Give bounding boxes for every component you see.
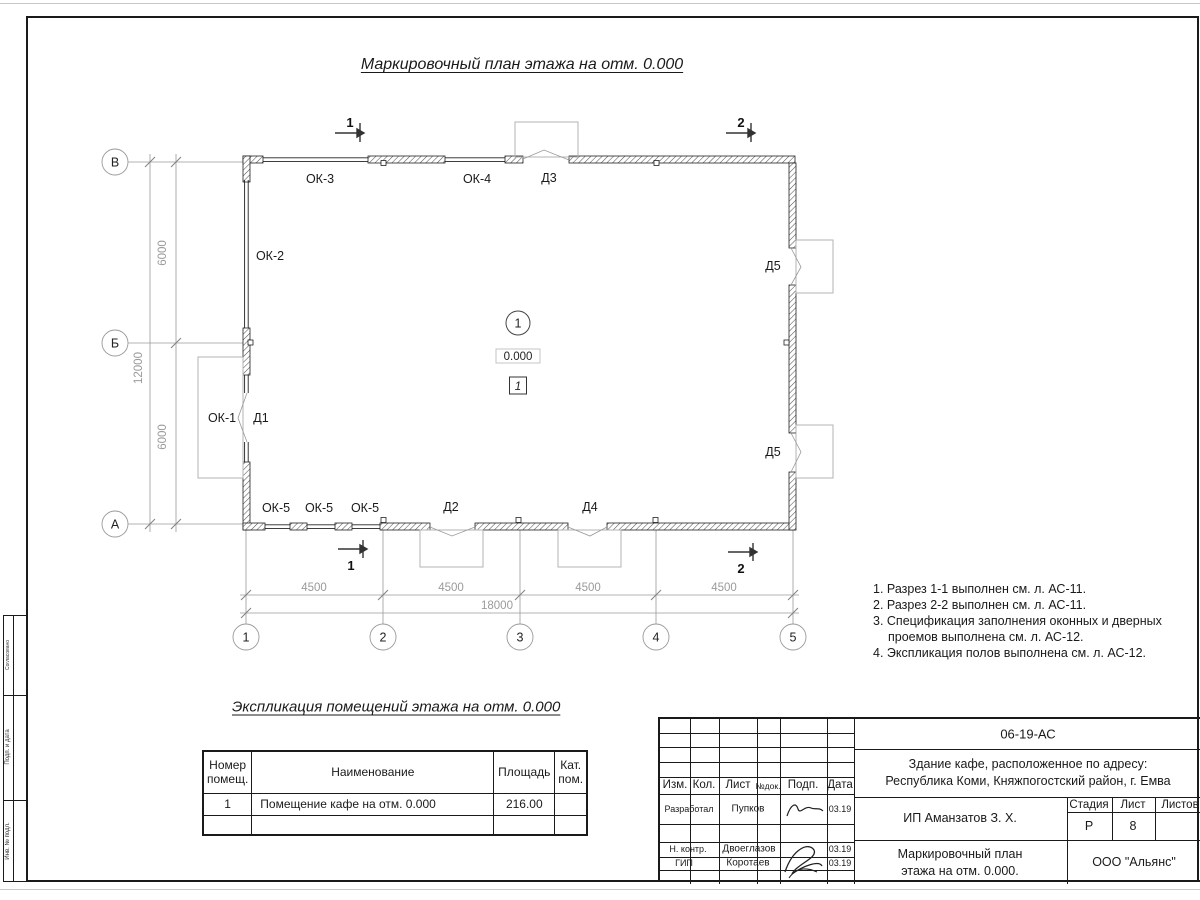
stamp-drawing-name-line2: этажа на отм. 0.000. <box>901 864 1018 878</box>
dim-4500: 4500 <box>711 582 737 594</box>
door-label-d1: Д1 <box>253 411 268 425</box>
stamp-role: Разработал <box>665 804 714 814</box>
stamp-date: 03.19 <box>829 858 852 868</box>
grid-bubbles: В Б А 1 2 3 4 5 <box>102 149 806 650</box>
stamp-drawing-name-line1: Маркировочный план <box>898 847 1023 861</box>
dim-18000: 18000 <box>481 600 513 612</box>
window-label-ok5: ОК-5 <box>305 501 333 515</box>
grid-col-label: 2 <box>380 631 387 645</box>
dim-6000-upper: 6000 <box>157 240 169 266</box>
explication-table: Номер помещ. Наименование Площадь Кат. п… <box>202 750 588 836</box>
stamp-sheets-label: Листов <box>1161 799 1198 811</box>
title-block: Изм. Кол. Лист №док. Подп. Дата Разработ… <box>658 717 1200 882</box>
column-header-name: Наименование <box>252 751 494 793</box>
porches <box>198 122 833 567</box>
room-name-cell: Помещение кафе на отм. 0.000 <box>252 793 494 815</box>
stamp-role: ГИП <box>675 858 693 868</box>
note-item: 4. Экспликация полов выполнена см. л. АС… <box>873 645 1173 661</box>
stamp-name: Пупков <box>732 804 765 815</box>
window-label-ok5: ОК-5 <box>262 501 290 515</box>
dim-6000-lower: 6000 <box>157 424 169 450</box>
grid-row-label: В <box>111 156 119 170</box>
window-label-ok3: ОК-3 <box>306 172 334 186</box>
stamp-header-podp: Подп. <box>788 779 819 791</box>
stamp-header-izm: Изм. <box>663 779 688 791</box>
stamp-sheet-value: 8 <box>1130 819 1137 833</box>
section-mark-label: 2 <box>737 115 744 130</box>
drawing-sheet: Согласовано Подп. и дата Инв. № подл. Ма… <box>0 0 1200 900</box>
room-category-cell <box>555 793 587 815</box>
door-label-d3: Д3 <box>541 171 556 185</box>
explication-title: Экспликация помещений этажа на отм. 0.00… <box>232 699 560 716</box>
grid-lines <box>128 154 799 624</box>
stamp-sheet-label: Лист <box>1121 799 1146 811</box>
windows <box>245 158 505 529</box>
dim-12000: 12000 <box>133 352 145 384</box>
stamp-header-data: Дата <box>827 779 852 791</box>
stamp-company: ООО "Альянс" <box>1092 855 1176 869</box>
door-label-d4: Д4 <box>582 500 597 514</box>
column-header-number: Номер помещ. <box>203 751 252 793</box>
stamp-role: Н. контр. <box>669 844 706 854</box>
elevation-marker: 0.000 <box>504 351 533 363</box>
dim-4500: 4500 <box>575 582 601 594</box>
stamp-object-line1: Здание кафе, расположенное по адресу: <box>909 757 1148 771</box>
floor-type-marker: 1 <box>515 381 521 393</box>
section-mark-label: 1 <box>347 558 354 573</box>
stamp-header-kol: Кол. <box>693 779 716 791</box>
door-label-d5: Д5 <box>765 445 780 459</box>
room-area-cell: 216.00 <box>494 793 555 815</box>
grid-col-label: 1 <box>243 631 250 645</box>
wall-ties <box>248 161 789 523</box>
stamp-header-ndok: №док. <box>756 781 781 791</box>
stamp-client: ИП Аманзатов З. Х. <box>903 811 1017 825</box>
stamp-header-list: Лист <box>726 779 751 791</box>
grid-col-label: 5 <box>790 631 797 645</box>
signature-icon <box>779 838 826 882</box>
stamp-date: 03.19 <box>829 844 852 854</box>
grid-row-label: А <box>111 518 120 532</box>
walls <box>243 156 796 530</box>
stamp-name: Коротаев <box>726 858 769 869</box>
column-header-category: Кат. пом. <box>555 751 587 793</box>
window-label-ok2: ОК-2 <box>256 249 284 263</box>
stamp-object-line2: Республика Коми, Княжпогостский район, г… <box>885 774 1170 788</box>
stamp-doc-code: 06-19-АС <box>1000 727 1055 742</box>
grid-col-label: 4 <box>653 631 660 645</box>
note-item: 3. Спецификация заполнения оконных и две… <box>873 613 1173 645</box>
dim-4500: 4500 <box>438 582 464 594</box>
room-number-marker: 1 <box>515 317 522 331</box>
notes-list: 1. Разрез 1-1 выполнен см. л. АС-11. 2. … <box>873 581 1173 661</box>
window-label-ok1: ОК-1 <box>208 411 236 425</box>
section-mark-label: 1 <box>346 115 353 130</box>
door-label-d2: Д2 <box>443 500 458 514</box>
dimensions: 6000 12000 6000 4500 4500 4500 4500 1800… <box>133 240 737 612</box>
window-label-ok5: ОК-5 <box>351 501 379 515</box>
signature-icon <box>781 798 826 823</box>
column-header-area: Площадь <box>494 751 555 793</box>
door-leaves <box>238 150 801 536</box>
door-label-d5: Д5 <box>765 259 780 273</box>
dim-4500: 4500 <box>301 582 327 594</box>
stamp-date: 03.19 <box>829 804 852 814</box>
room-number-cell: 1 <box>203 793 252 815</box>
section-mark-label: 2 <box>737 561 744 576</box>
grid-row-label: Б <box>111 337 119 351</box>
table-row <box>203 815 587 835</box>
stamp-stage-value: Р <box>1085 819 1093 833</box>
stamp-stage-label: Стадия <box>1069 799 1108 811</box>
note-item: 1. Разрез 1-1 выполнен см. л. АС-11. <box>873 581 1173 597</box>
stamp-name: Двоеглазов <box>722 844 775 855</box>
room-markers: 1 0.000 1 <box>496 311 540 394</box>
note-item: 2. Разрез 2-2 выполнен см. л. АС-11. <box>873 597 1173 613</box>
grid-col-label: 3 <box>517 631 524 645</box>
window-label-ok4: ОК-4 <box>463 172 491 186</box>
table-row: 1 Помещение кафе на отм. 0.000 216.00 <box>203 793 587 815</box>
